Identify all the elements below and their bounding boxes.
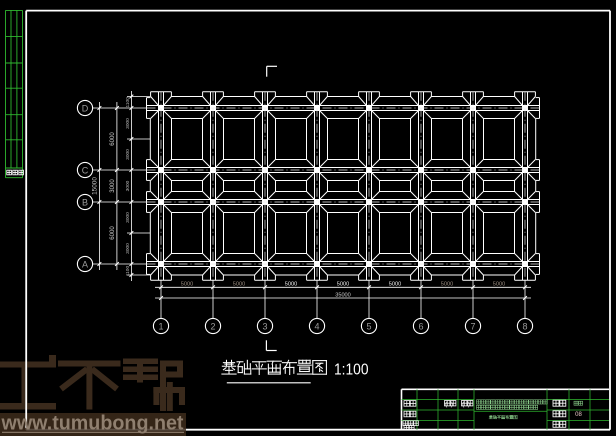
svg-text:5000: 5000	[285, 281, 297, 287]
svg-text:1100: 1100	[125, 97, 131, 108]
svg-text:5000: 5000	[441, 281, 453, 287]
svg-text:A: A	[82, 259, 88, 269]
svg-text:5000: 5000	[337, 281, 349, 287]
svg-text:5000: 5000	[493, 281, 505, 287]
svg-text:5000: 5000	[181, 281, 193, 287]
svg-text:3000: 3000	[125, 212, 131, 223]
svg-text:5000: 5000	[389, 281, 401, 287]
svg-text:6000: 6000	[110, 226, 116, 240]
svg-text:( ): ( )	[462, 401, 470, 408]
svg-text:35000: 35000	[335, 293, 351, 299]
svg-text:3000: 3000	[125, 180, 131, 191]
svg-text:15000: 15000	[92, 177, 99, 195]
svg-text:8: 8	[522, 321, 527, 331]
svg-text:4: 4	[314, 321, 319, 331]
svg-text:2: 2	[210, 321, 215, 331]
svg-text:6: 6	[418, 321, 423, 331]
svg-text:08: 08	[575, 412, 582, 418]
svg-text:1:100: 1:100	[334, 362, 369, 379]
svg-text:3000: 3000	[125, 118, 131, 129]
svg-text:( ): ( )	[445, 401, 453, 408]
svg-text:B: B	[82, 197, 88, 207]
svg-text:1100: 1100	[125, 266, 131, 277]
svg-text:7: 7	[470, 321, 475, 331]
svg-text:3000: 3000	[110, 179, 116, 193]
svg-text:3: 3	[262, 321, 267, 331]
svg-text:5: 5	[366, 321, 371, 331]
svg-text:1: 1	[158, 321, 163, 331]
svg-text:3000: 3000	[125, 149, 131, 160]
svg-text:C: C	[82, 165, 89, 175]
svg-text:5000: 5000	[233, 281, 245, 287]
svg-text:3000: 3000	[125, 243, 131, 254]
svg-text:D: D	[82, 103, 89, 113]
svg-text:www.tumubong.net: www.tumubong.net	[1, 413, 184, 435]
svg-text:6000: 6000	[110, 132, 116, 146]
